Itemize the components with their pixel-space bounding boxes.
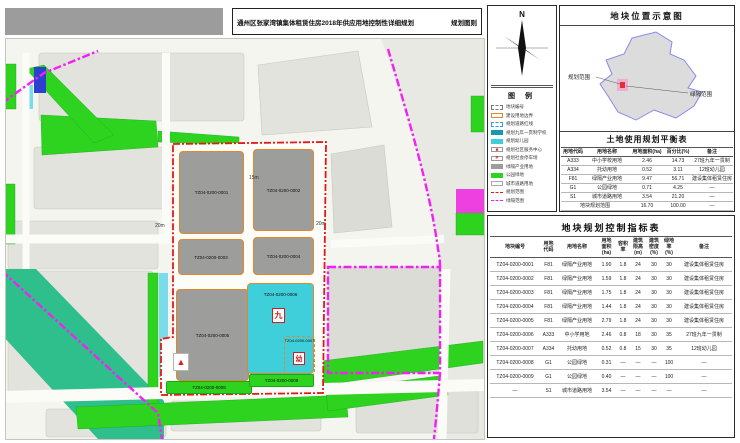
district-locator-map: 规划范围 绿隔范围 — [560, 26, 734, 126]
legend-item-label: 规划范围 — [506, 189, 524, 195]
cell: 27班九年一贯制 — [676, 328, 732, 342]
cell: 4.25 — [665, 184, 691, 193]
cell: 30 — [646, 300, 662, 314]
table-row: 地块规划范围16.70100.00— — [561, 202, 733, 211]
cell: 绿隔产业用地 — [557, 314, 597, 328]
divider — [560, 131, 734, 132]
cell: 30 — [662, 272, 676, 286]
legend-list: 地块编号建设用地边界规划道路红线规划九年一贯制学校规划幼儿园■规划社区服务中心P… — [488, 103, 556, 205]
cell: — — [676, 356, 732, 370]
sw-dash-icon — [491, 105, 503, 110]
cell: — — [691, 193, 733, 202]
header-row: 地块编号用地 代码用地名称用地 面积 (ha)容积 率建筑 限高 (m)建筑 密… — [490, 237, 732, 258]
cell: 0.31 — [597, 356, 616, 370]
parcel-0002[interactable]: TZ04-0200-0002 — [253, 149, 314, 231]
col-header: 备注 — [691, 148, 733, 157]
cell: S1 — [561, 193, 585, 202]
cell: 30 — [646, 258, 662, 272]
site-marker — [620, 82, 625, 88]
parcel-0001[interactable]: TZ04-0200-0001 — [179, 151, 244, 234]
col-header: 用地代码 — [561, 148, 585, 157]
cell: TZ04-0200-0008 — [490, 356, 540, 370]
cell: 30 — [662, 286, 676, 300]
table-row: TZ04-0200-0002F81绿隔产业用地1.591.8243030建设集体… — [490, 272, 732, 286]
cell: 绿隔产业用地 — [557, 258, 597, 272]
cell: 建设集体租赁住房 — [676, 300, 732, 314]
cell: G1 — [540, 370, 557, 384]
cell: — — [616, 384, 630, 398]
col-header: 备注 — [676, 237, 732, 258]
sw-cyan-dash-icon — [491, 122, 503, 127]
table-row: TZ04-0200-0009G1公园绿地0.40———100— — [490, 370, 732, 384]
cell: 3.54 — [597, 384, 616, 398]
north-arrow: N — [488, 6, 556, 80]
cell: 1.44 — [597, 300, 616, 314]
balance-table-title: 土地使用规划平衡表 — [560, 134, 734, 145]
cell: 24 — [630, 314, 646, 328]
cell: 1.8 — [616, 258, 630, 272]
cell: 100 — [662, 370, 676, 384]
table-row: S1城市道路用地3.5421.20— — [561, 193, 733, 202]
cell: 绿隔产业用地 — [557, 286, 597, 300]
legend-item-label: 绿隔产业用地 — [506, 164, 533, 170]
parcel-0008-green[interactable]: TZ04-0200-0008 — [166, 381, 252, 394]
cell: — — [630, 370, 646, 384]
cell: 30 — [646, 286, 662, 300]
cell: 公园绿地 — [585, 184, 629, 193]
header-row: 用地代码用地名称用地面积(ha)百分比(%)备注 — [561, 148, 733, 157]
legend-item-label: 规划道路红线 — [506, 121, 533, 127]
legend-item: 地块编号 — [491, 103, 553, 112]
table-row: TZ04-0200-0006A333中小学用地2.460.818303527班九… — [490, 328, 732, 342]
parcel-code: TZ04-0200-0009 — [265, 378, 299, 383]
divider — [491, 85, 553, 86]
col-header: 用地 代码 — [540, 237, 557, 258]
cell: TZ04-0200-0001 — [490, 258, 540, 272]
cell: TZ04-0200-0004 — [490, 300, 540, 314]
title-bar: 通州区张家湾镇集体租赁住房2018年供应用地控制性详细规划 规划图则 — [232, 8, 482, 35]
cell: 2.46 — [629, 157, 665, 166]
col-header: 绿地 率 (%) — [662, 237, 676, 258]
cell: TZ04-0200-0006 — [490, 328, 540, 342]
cell: — — [676, 384, 732, 398]
col-header: 用地名称 — [557, 237, 597, 258]
cell: 100.00 — [665, 202, 691, 211]
cell: — — [616, 356, 630, 370]
legend-item-label: 绿隔范围 — [506, 198, 524, 204]
cell: 0.8 — [616, 328, 630, 342]
cell: TZ04-0200-0009 — [490, 370, 540, 384]
cell: 56.71 — [665, 175, 691, 184]
parcel-code: TZ04-0200-0004 — [267, 254, 301, 259]
cell: A334 — [540, 342, 557, 356]
cell: F81 — [540, 314, 557, 328]
cell: 城市道路用地 — [585, 193, 629, 202]
cell: TZ04-0200-0005 — [490, 314, 540, 328]
table-row: TZ04-0200-0004F81绿隔产业用地1.441.8243030建设集体… — [490, 300, 732, 314]
cell: S1 — [540, 384, 557, 398]
cell: 12班幼儿园 — [676, 342, 732, 356]
cell: 3.54 — [629, 193, 665, 202]
parcel-0004[interactable]: TZ04-0200-0004 — [253, 237, 314, 275]
cell: 15 — [630, 342, 646, 356]
sw-orange-icon — [491, 113, 503, 118]
cell: F81 — [540, 258, 557, 272]
svg-text:N: N — [519, 10, 525, 19]
parcel-0009-green[interactable]: TZ04-0200-0009 — [249, 374, 314, 387]
parcel-0006-school[interactable]: TZ04-0200-0006 九 TZ04-0200-0007 幼 — [247, 283, 314, 374]
cell: TZ04-0200-0007 — [490, 342, 540, 356]
cell: — — [646, 384, 662, 398]
cell: 3.11 — [665, 166, 691, 175]
cell: 1.8 — [616, 286, 630, 300]
cell: — — [662, 384, 676, 398]
cell: — — [646, 370, 662, 384]
plot-control-index-table: 地块编号用地 代码用地名称用地 面积 (ha)容积 率建筑 限高 (m)建筑 密… — [490, 236, 732, 398]
cell: G1 — [540, 356, 557, 370]
legend-item-label: 公园绿地 — [506, 172, 524, 178]
nine-year-school-icon: 九 — [272, 308, 285, 323]
cell: 建设集体租赁住房 — [676, 286, 732, 300]
parcel-code: TZ04-0200-0001 — [195, 190, 229, 195]
road-width-label: 20m — [155, 223, 165, 229]
cell: 0.52 — [629, 166, 665, 175]
cell: A333 — [540, 328, 557, 342]
cell: — — [630, 356, 646, 370]
sw-magenta-line-icon — [491, 200, 503, 201]
cell: — — [616, 370, 630, 384]
col-header: 地块编号 — [490, 237, 540, 258]
cell: 地块规划范围 — [561, 202, 629, 211]
cell: 托幼用地 — [557, 342, 597, 356]
sheet-type-label: 规划图则 — [451, 17, 477, 27]
cell: — — [676, 370, 732, 384]
road-width-label: 20m — [316, 221, 326, 227]
cell: 30 — [662, 258, 676, 272]
cell: 1.75 — [597, 286, 616, 300]
cell: 0.40 — [597, 370, 616, 384]
index-table-title: 地块规划控制指标表 — [488, 216, 734, 234]
sw-green-icon — [491, 173, 503, 178]
cell: 绿隔产业用地 — [557, 300, 597, 314]
sw-mark-icon: P — [491, 156, 503, 161]
cell: 30 — [646, 342, 662, 356]
table-row: G1公园绿地0.714.25— — [561, 184, 733, 193]
legend-item-label: 规划社会停车场 — [506, 155, 538, 161]
parcel-code: TZ04-0200-0007 — [285, 338, 315, 343]
cell: 21.20 — [665, 193, 691, 202]
cell: F81 — [540, 286, 557, 300]
cell: 中小学校用地 — [585, 157, 629, 166]
legend-item-label: 建设用地边界 — [506, 113, 533, 119]
legend-panel: N 图 例 地块编号建设用地边界规划道路红线规划九年一贯制学校规划幼儿园■规划社… — [487, 5, 557, 212]
legend-title: 图 例 — [488, 91, 556, 101]
legend-item: P规划社会停车场 — [491, 154, 553, 163]
cell: 30 — [646, 314, 662, 328]
legend-item: 规划道路红线 — [491, 120, 553, 129]
cell: 0.52 — [597, 342, 616, 356]
control-index-panel: 地块规划控制指标表 地块编号用地 代码用地名称用地 面积 (ha)容积 率建筑 … — [487, 215, 735, 438]
cell: 绿隔产业用地 — [557, 272, 597, 286]
legend-item: 规划幼儿园 — [491, 137, 553, 146]
col-header: 用地名称 — [585, 148, 629, 157]
cell: — — [630, 384, 646, 398]
cell: 24 — [630, 300, 646, 314]
cell: 1.90 — [597, 258, 616, 272]
col-header: 建筑 限高 (m) — [630, 237, 646, 258]
table-row: TZ04-0200-0008G1公园绿地0.31———100— — [490, 356, 732, 370]
col-header: 百分比(%) — [665, 148, 691, 157]
cell: — — [691, 184, 733, 193]
cell: — — [490, 384, 540, 398]
legend-item: ■规划社区服务中心 — [491, 146, 553, 155]
cell: 24 — [630, 286, 646, 300]
parcel-code: TZ04-0200-0005 — [196, 333, 230, 338]
greenbelt-scope-label: 绿隔范围 — [690, 90, 713, 98]
cell: G1 — [561, 184, 585, 193]
sw-teal-icon — [491, 139, 503, 144]
cell: 12班幼儿园 — [691, 166, 733, 175]
cell: TZ04-0200-0002 — [490, 272, 540, 286]
cell: 100 — [662, 356, 676, 370]
cell: 35 — [662, 328, 676, 342]
legend-item: 建设用地边界 — [491, 112, 553, 121]
parcel-0007-kindergarten[interactable]: TZ04-0200-0007 幼 — [284, 336, 315, 375]
cell: 中小学用地 — [557, 328, 597, 342]
cell: 9.47 — [629, 175, 665, 184]
sw-red-line-icon — [491, 192, 503, 193]
cell: 24 — [630, 258, 646, 272]
legend-item: 规划范围 — [491, 188, 553, 197]
title-cover-block — [5, 8, 223, 35]
legend-item: 绿隔范围 — [491, 197, 553, 206]
sw-gray-icon — [491, 164, 503, 169]
cell: 建设集体租赁住房 — [691, 175, 733, 184]
kindergarten-icon: 幼 — [293, 352, 305, 365]
table-row: TZ04-0200-0001F81绿隔产业用地1.901.8243030建设集体… — [490, 258, 732, 272]
table-row: —S1城市道路用地3.54————— — [490, 384, 732, 398]
legend-item-label: 规划社区服务中心 — [506, 147, 542, 153]
legend-item-label: 规划九年一贯制学校 — [506, 130, 547, 136]
cell: A333 — [561, 157, 585, 166]
cell: 24 — [630, 272, 646, 286]
cell: A334 — [561, 166, 585, 175]
cell: 0.8 — [616, 342, 630, 356]
table-row: A333中小学校用地2.4614.7327班九年一贯制 — [561, 157, 733, 166]
district-outline — [600, 32, 702, 120]
planning-sheet: 通州区张家湾镇集体租赁住房2018年供应用地控制性详细规划 规划图则 — [0, 0, 740, 443]
cell: 1.8 — [616, 272, 630, 286]
cell: 30 — [662, 300, 676, 314]
cell: 0.71 — [629, 184, 665, 193]
page-title: 通州区张家湾镇集体租赁住房2018年供应用地控制性详细规划 — [237, 17, 414, 27]
cell: 2.46 — [597, 328, 616, 342]
location-map-title: 地块位置示意图 — [560, 6, 734, 26]
cell: 14.73 — [665, 157, 691, 166]
cell: 30 — [662, 314, 676, 328]
parcel-code: TZ04-0200-0002 — [267, 188, 301, 193]
cell: F81 — [540, 300, 557, 314]
cell: 城市道路用地 — [557, 384, 597, 398]
parcel-code: TZ04-0200-0006 — [264, 292, 298, 297]
table-row: A334托幼用地0.523.1112班幼儿园 — [561, 166, 733, 175]
cell: 30 — [646, 328, 662, 342]
table-row: TZ04-0200-0005F81绿隔产业用地2.791.8243030建设集体… — [490, 314, 732, 328]
legend-item-label: 地块编号 — [506, 104, 524, 110]
legend-item-label: 城市道路用地 — [506, 181, 533, 187]
sw-road-icon — [491, 181, 503, 186]
col-header: 用地面积(ha) — [629, 148, 665, 157]
parcel-code: TZ04-0200-0003 — [194, 255, 228, 260]
col-header: 容积 率 — [616, 237, 630, 258]
magenta-parcel — [456, 189, 484, 213]
cell: TZ04-0200-0003 — [490, 286, 540, 300]
cell: 建设集体租赁住房 — [676, 272, 732, 286]
divider — [491, 87, 553, 88]
cell: — — [691, 202, 733, 211]
cell: 1.8 — [616, 314, 630, 328]
cell: 16.70 — [629, 202, 665, 211]
cell: 建设集体租赁住房 — [676, 314, 732, 328]
sw-mark-icon: ■ — [491, 147, 503, 152]
legend-item: 城市道路用地 — [491, 180, 553, 189]
table-row: F81绿隔产业用地9.4756.71建设集体租赁住房 — [561, 175, 733, 184]
road-width-label: 15m — [249, 175, 259, 181]
legend-item: 绿隔产业用地 — [491, 163, 553, 172]
legend-item: 公园绿地 — [491, 171, 553, 180]
cell: 27班九年一贯制 — [691, 157, 733, 166]
table-row: TZ04-0200-0003F81绿隔产业用地1.751.8243030建设集体… — [490, 286, 732, 300]
parcel-code: TZ04-0200-0008 — [192, 385, 226, 390]
cell: F81 — [561, 175, 585, 184]
table-row: TZ04-0200-0007A334托幼用地0.520.815303512班幼儿… — [490, 342, 732, 356]
cell: 托幼用地 — [585, 166, 629, 175]
cell: F81 — [540, 272, 557, 286]
cell: 公园绿地 — [557, 370, 597, 384]
cell: 1.8 — [616, 300, 630, 314]
col-header: 建筑 密度 (%) — [646, 237, 662, 258]
land-use-balance-table: 用地代码用地名称用地面积(ha)百分比(%)备注A333中小学校用地2.4614… — [561, 147, 733, 211]
cell: 35 — [662, 342, 676, 356]
sw-teal-dark-icon — [491, 130, 503, 135]
planning-map[interactable]: TZ04-0200-0001 TZ04-0200-0002 TZ04-0200-… — [5, 38, 485, 440]
blue-facility-block — [34, 67, 46, 93]
cell: 2.79 — [597, 314, 616, 328]
cell: — — [646, 356, 662, 370]
cell: 18 — [630, 328, 646, 342]
location-balance-panel: 地块位置示意图 规划范围 绿隔范围 土地使用规划平衡表 用地代码用地名称用地面积… — [559, 5, 735, 212]
planning-scope-label: 规划范围 — [568, 73, 591, 81]
legend-item-label: 规划幼儿园 — [506, 138, 529, 144]
triangle-marker-icon: ▲ — [173, 353, 189, 371]
legend-item: 规划九年一贯制学校 — [491, 129, 553, 138]
cell: 30 — [646, 272, 662, 286]
col-header: 用地 面积 (ha) — [597, 237, 616, 258]
parcel-0003[interactable]: TZ04-0200-0003 — [178, 239, 244, 275]
cell: 公园绿地 — [557, 356, 597, 370]
cell: 1.59 — [597, 272, 616, 286]
cell: 绿隔产业用地 — [585, 175, 629, 184]
cell: 建设集体租赁住房 — [676, 258, 732, 272]
